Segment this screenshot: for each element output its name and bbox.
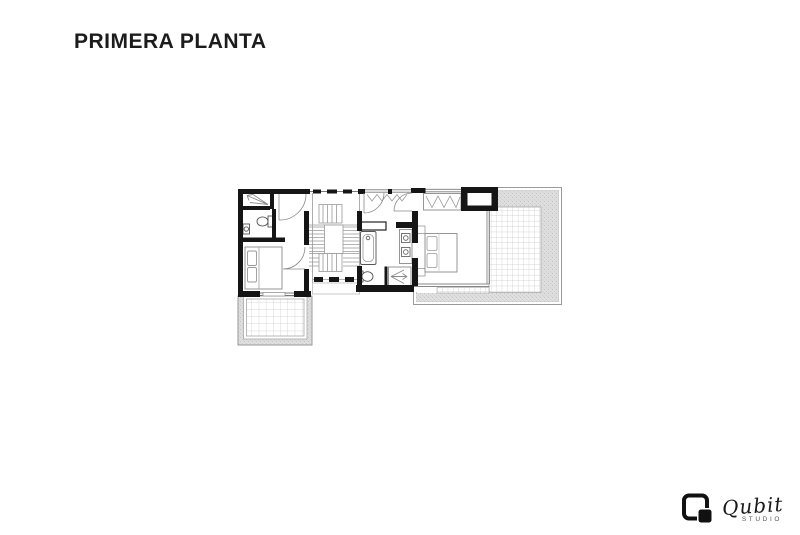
closet-arrow-icon [389, 267, 412, 286]
logo-brand: Qubit [722, 494, 785, 518]
floor-plan [0, 0, 800, 535]
hall-window-drapes [367, 195, 407, 202]
terrace-tiles [489, 207, 541, 293]
toilet-icon [257, 216, 273, 227]
vanity-sinks [400, 230, 413, 264]
qubit-logo-icon [681, 493, 715, 527]
terrace-tiles [247, 299, 305, 336]
closet-arrow-icon [247, 194, 268, 205]
studio-logo: Qubit STUDIO [681, 493, 784, 527]
sink-icon [243, 224, 250, 234]
master-bed [417, 226, 458, 276]
page: PRIMERA PLANTA [0, 0, 800, 535]
master-wardrobe [424, 194, 462, 211]
left-terrace [238, 296, 312, 345]
bathtub-icon [361, 222, 387, 265]
bed-2 [245, 247, 282, 289]
